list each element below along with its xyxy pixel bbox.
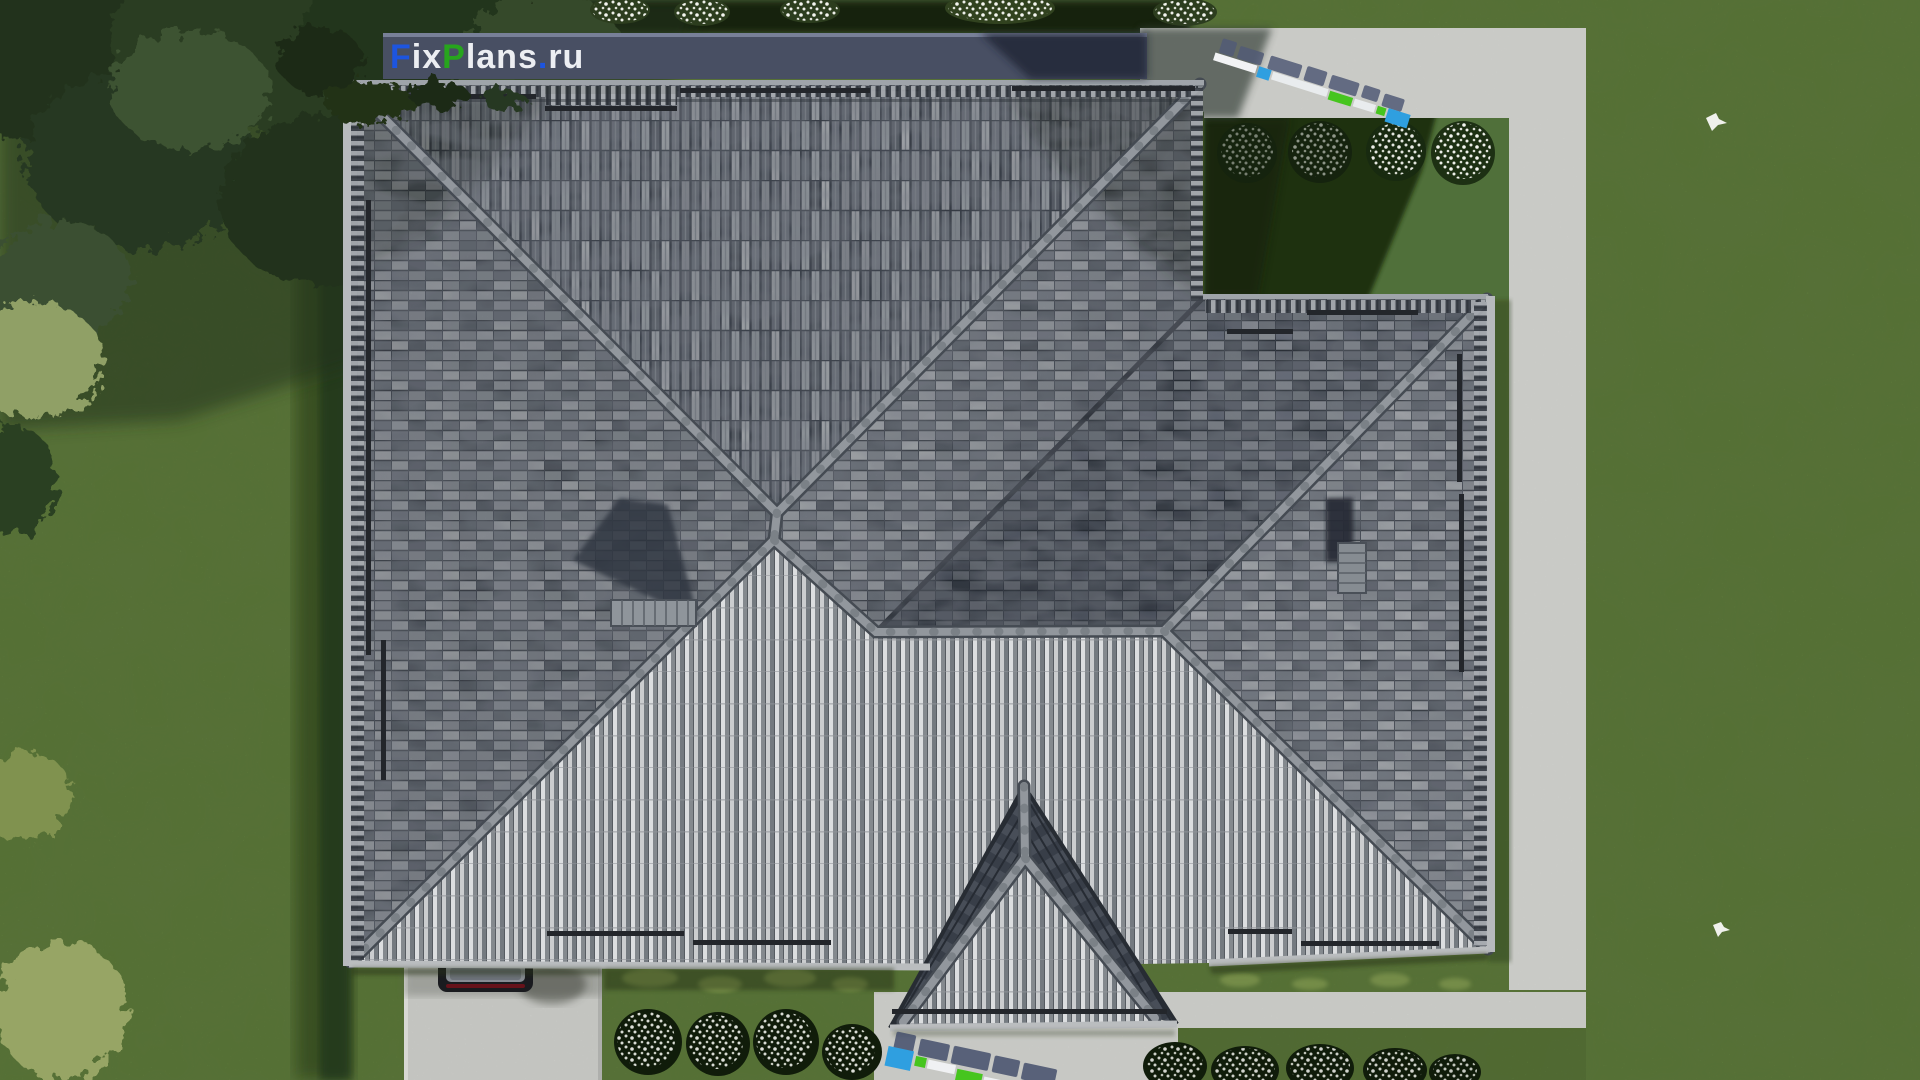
svg-text:FixPlans.ru: FixPlans.ru: [390, 38, 584, 76]
